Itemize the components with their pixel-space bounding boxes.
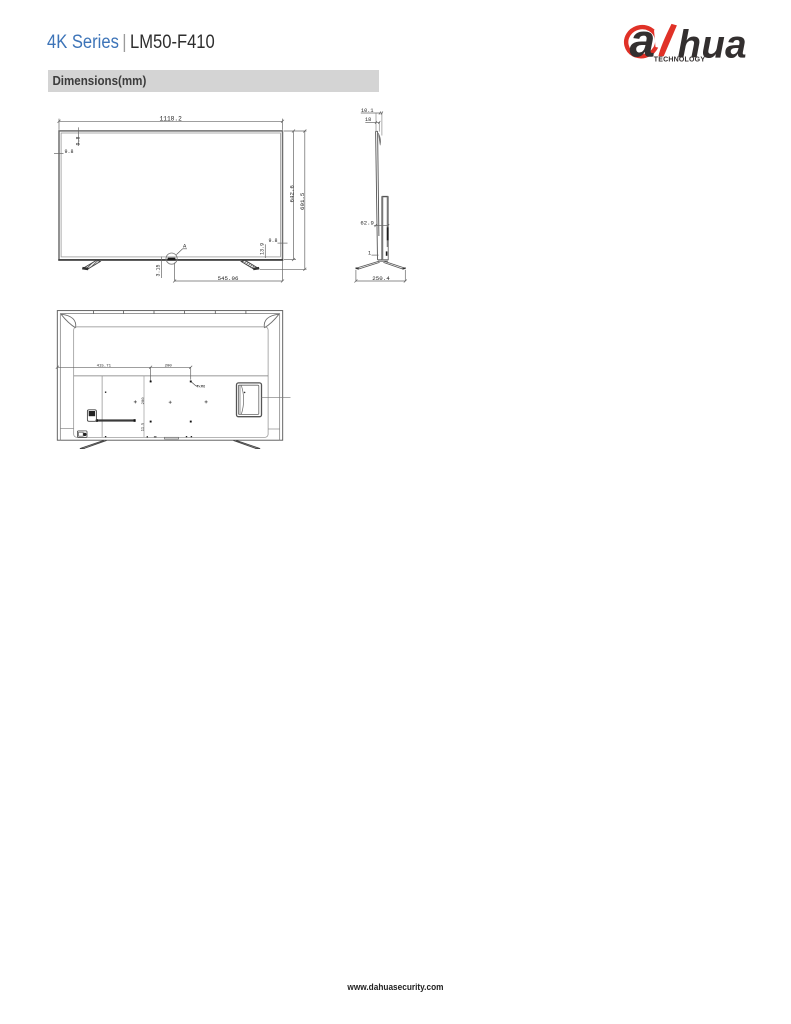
svg-text:545.06: 545.06 (218, 275, 239, 282)
svg-text:10.1: 10.1 (361, 108, 373, 114)
svg-text:11.5: 11.5 (142, 423, 146, 432)
svg-text:9.8: 9.8 (65, 149, 74, 155)
svg-text:9.8: 9.8 (75, 136, 81, 145)
svg-text:18: 18 (365, 117, 371, 123)
svg-text:TECHNOLOGY: TECHNOLOGY (654, 57, 706, 64)
svg-text:642.6: 642.6 (288, 185, 295, 203)
svg-text:3.15: 3.15 (156, 264, 162, 276)
svg-text:250.4: 250.4 (372, 275, 390, 282)
svg-text:a: a (630, 16, 656, 67)
svg-text:1: 1 (368, 250, 371, 256)
svg-text:62.9: 62.9 (360, 220, 373, 227)
svg-text:691.5: 691.5 (299, 192, 306, 210)
svg-text:200: 200 (165, 365, 173, 369)
svg-text:4xM6: 4xM6 (196, 385, 206, 389)
svg-text:200: 200 (142, 397, 146, 405)
svg-text:13.9: 13.9 (260, 243, 266, 255)
svg-text:1118.2: 1118.2 (160, 115, 183, 122)
svg-text:415.71: 415.71 (97, 365, 112, 369)
svg-text:9.8: 9.8 (269, 238, 278, 244)
